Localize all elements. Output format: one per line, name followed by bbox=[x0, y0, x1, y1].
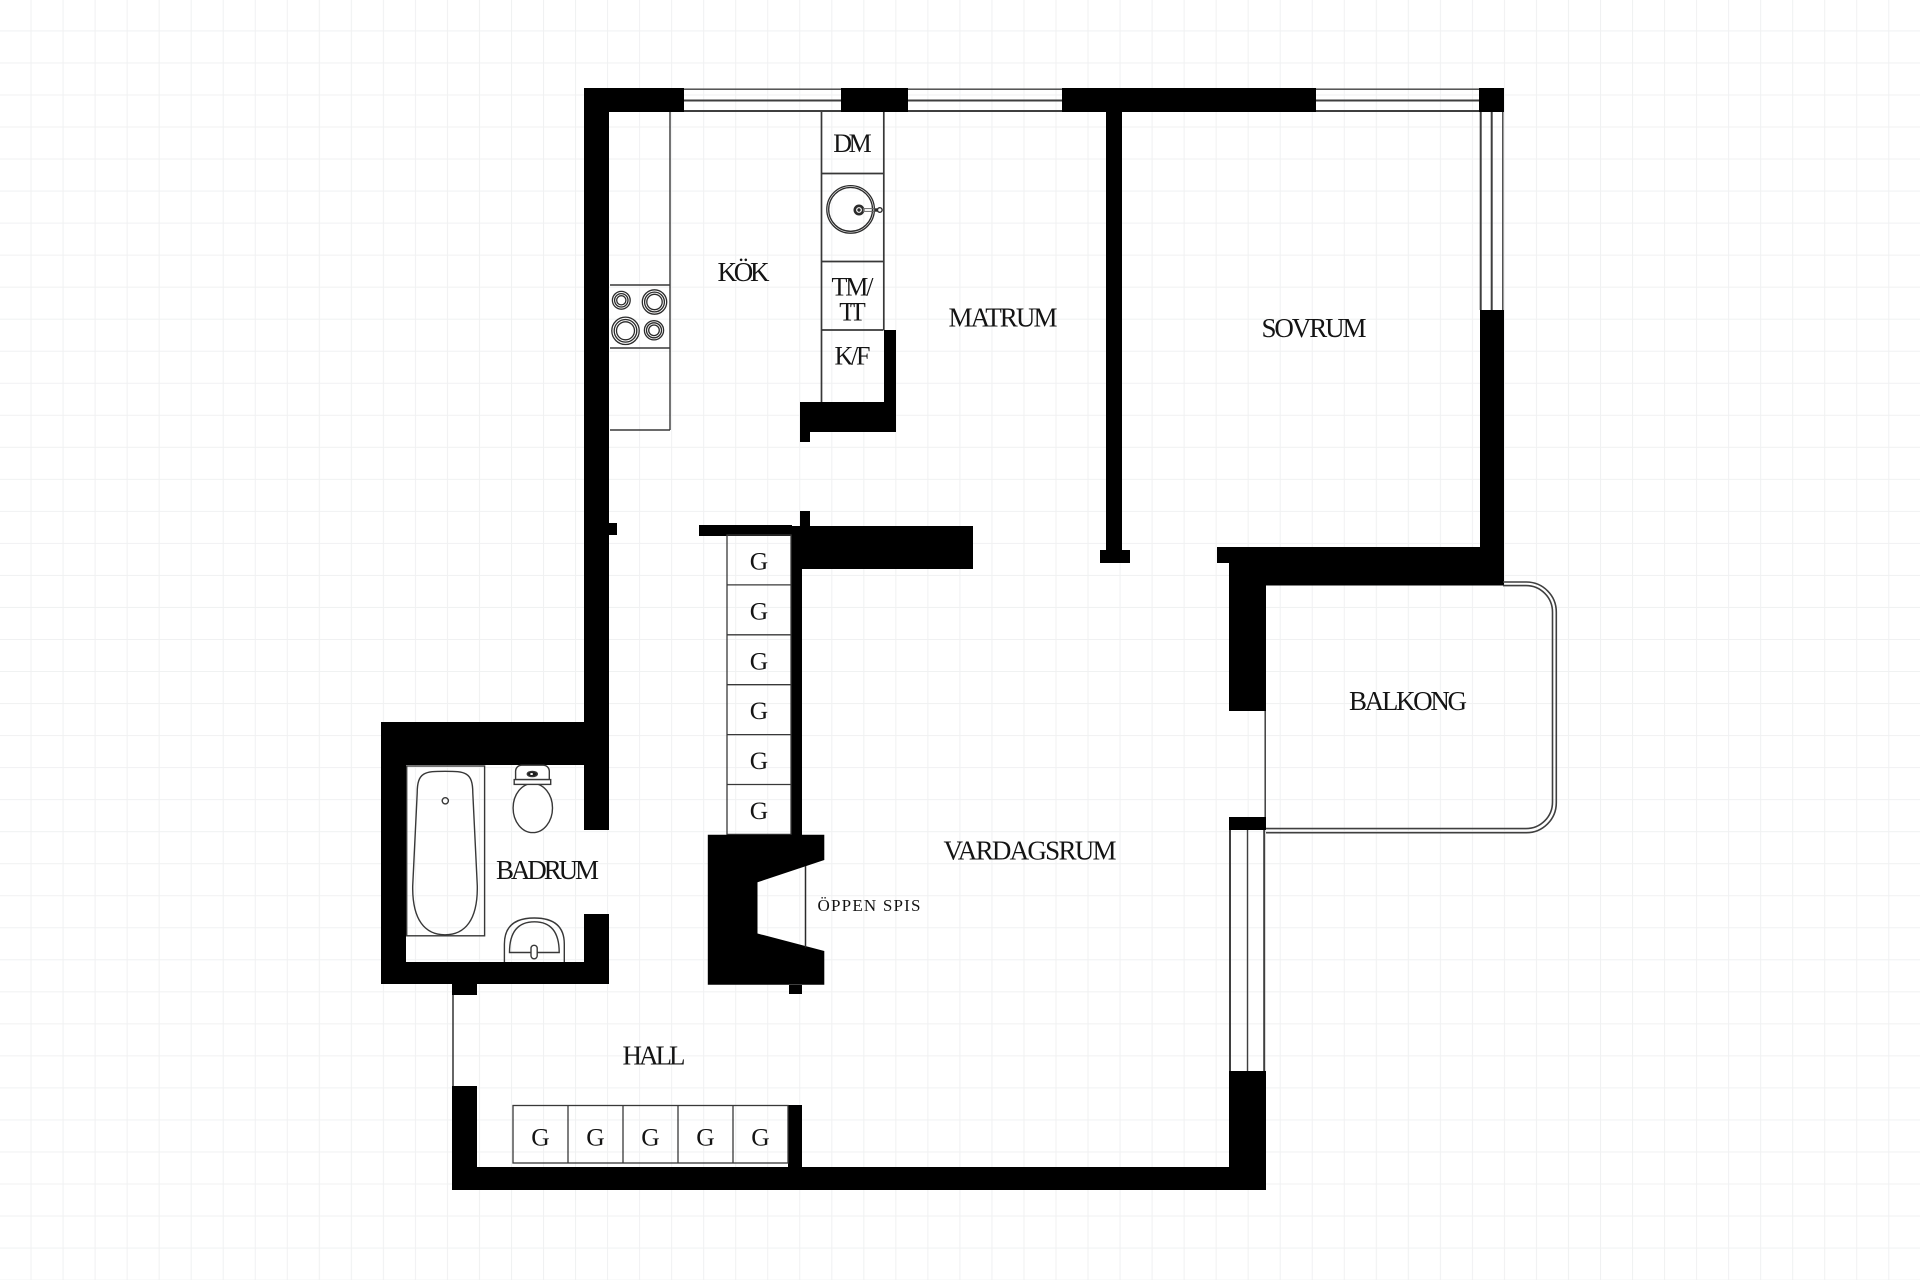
svg-text:KÖK: KÖK bbox=[718, 257, 771, 287]
svg-text:DM: DM bbox=[833, 129, 872, 158]
svg-text:G: G bbox=[751, 1123, 769, 1152]
svg-text:HALL: HALL bbox=[623, 1041, 686, 1071]
svg-text:G: G bbox=[750, 646, 768, 675]
svg-text:ÖPPEN SPIS: ÖPPEN SPIS bbox=[818, 896, 921, 915]
svg-text:G: G bbox=[750, 746, 768, 775]
svg-text:K/F: K/F bbox=[835, 342, 871, 371]
svg-text:G: G bbox=[750, 596, 768, 625]
svg-text:MATRUM: MATRUM bbox=[949, 303, 1058, 333]
svg-text:G: G bbox=[750, 796, 768, 825]
svg-text:G: G bbox=[531, 1123, 549, 1152]
svg-text:SOVRUM: SOVRUM bbox=[1262, 313, 1367, 343]
svg-text:G: G bbox=[750, 696, 768, 725]
svg-text:VARDAGSRUM: VARDAGSRUM bbox=[944, 836, 1117, 866]
svg-text:G: G bbox=[641, 1123, 659, 1152]
svg-text:G: G bbox=[696, 1123, 714, 1152]
svg-text:BADRUM: BADRUM bbox=[496, 855, 599, 885]
svg-text:TT: TT bbox=[839, 298, 866, 327]
svg-text:G: G bbox=[750, 547, 768, 576]
svg-text:G: G bbox=[586, 1123, 604, 1152]
svg-text:BALKONG: BALKONG bbox=[1349, 686, 1467, 716]
